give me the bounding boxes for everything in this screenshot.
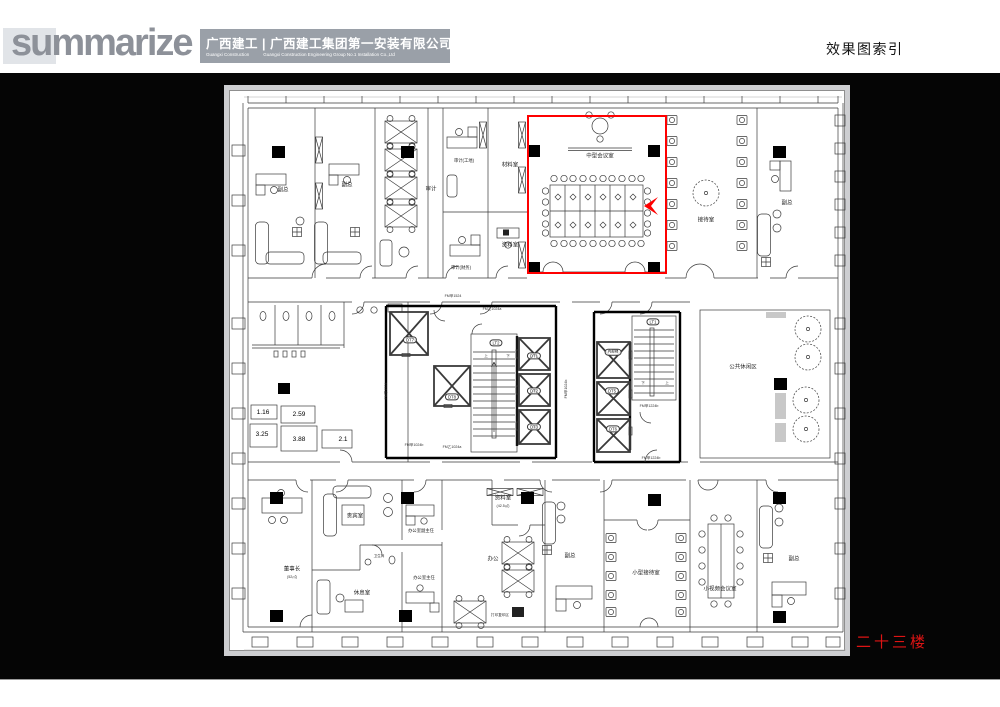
room-label-office: 办公 (487, 557, 498, 563)
room-label-vp4: 副总 (564, 554, 575, 560)
room-label-reception-small: 小型接待室 (632, 571, 660, 577)
room-label-audit-site: 审计(工地) (454, 159, 474, 163)
room-label-archive-bottom: 资料室 (495, 496, 512, 502)
stair-down-label: 下 (506, 355, 510, 359)
elevator-label-internal: 内部梯 (605, 349, 622, 356)
floor-label: 二十三楼 (856, 631, 928, 652)
room-label-audit-fin: 审计(财务) (451, 266, 471, 270)
area-number-388: 3.88 (293, 437, 306, 444)
firedoor-label: FM乙1024a (443, 446, 462, 450)
stair-up-label: 上 (484, 355, 488, 359)
highlight-box (527, 115, 667, 274)
room-label-reception: 接待室 (698, 218, 715, 224)
firedoor-label: FM甲1224b (640, 405, 659, 409)
room-label-print: 打印复印区 (491, 614, 509, 618)
firedoor-label: FM甲1024b (405, 444, 424, 448)
firedoor-label: FM甲1524 (385, 383, 389, 400)
area-number-325: 3.25 (256, 432, 269, 439)
room-label-vp3: 副总 (781, 201, 792, 207)
room-label-video-meeting: 小视频会议室 (703, 587, 736, 593)
floor-plan-svg (0, 0, 1000, 706)
area-number-116: 1.16 (257, 410, 270, 417)
room-label-material: 材料室 (502, 163, 519, 169)
stair-up-label: 上 (665, 382, 669, 386)
firedoor-label: FM甲1024b (565, 380, 569, 399)
elevator-label-dt2: DT2 (527, 387, 541, 394)
room-label-chairman: 董事长 (284, 567, 301, 573)
stair-label-lt2: LT2 (489, 339, 502, 346)
room-label-lounge: 公共休闲区 (729, 365, 757, 371)
elevator-label-dt8: DT8 (445, 393, 459, 400)
room-label-audit: 审计 (425, 187, 436, 193)
area-number-21: 2.1 (338, 437, 347, 444)
firedoor-label: FM乙1024a (483, 308, 502, 312)
room-label-office-deputy: 办公室副主任 (408, 529, 434, 533)
room-label-archive-top: 资料室 (502, 243, 519, 249)
room-label-vp1: 副总 (277, 188, 288, 194)
firedoor-label: FM甲1524 (445, 295, 462, 299)
elevator-label-dt5: DT5 (605, 387, 619, 394)
elevator-label-dt7: DT7 (403, 336, 417, 343)
area-number-259: 2.59 (293, 412, 306, 419)
room-area-archive-bottom: (42.5㎡) (497, 505, 510, 509)
firedoor-label: FM甲1224b (642, 457, 661, 461)
room-label-vp5: 副总 (788, 557, 799, 563)
room-label-office-director: 办公室主任 (413, 576, 434, 580)
room-area-chairman: (52㎡) (287, 576, 297, 580)
room-label-rest: 休息室 (354, 591, 371, 597)
stair-label-lt1: LT1 (646, 318, 659, 325)
room-label-vip: 贵宾室 (347, 514, 364, 520)
room-label-bathroom: 卫生间 (374, 555, 385, 559)
room-label-vp2: 副总 (341, 183, 352, 189)
elevator-label-dt3: DT3 (527, 423, 541, 430)
elevator-label-dt6: DT6 (606, 425, 620, 432)
stair-down-label: 下 (641, 382, 645, 386)
elevator-label-dt1: DT1 (527, 352, 541, 359)
room-label-meeting-mid: 中型会议室 (586, 154, 614, 160)
